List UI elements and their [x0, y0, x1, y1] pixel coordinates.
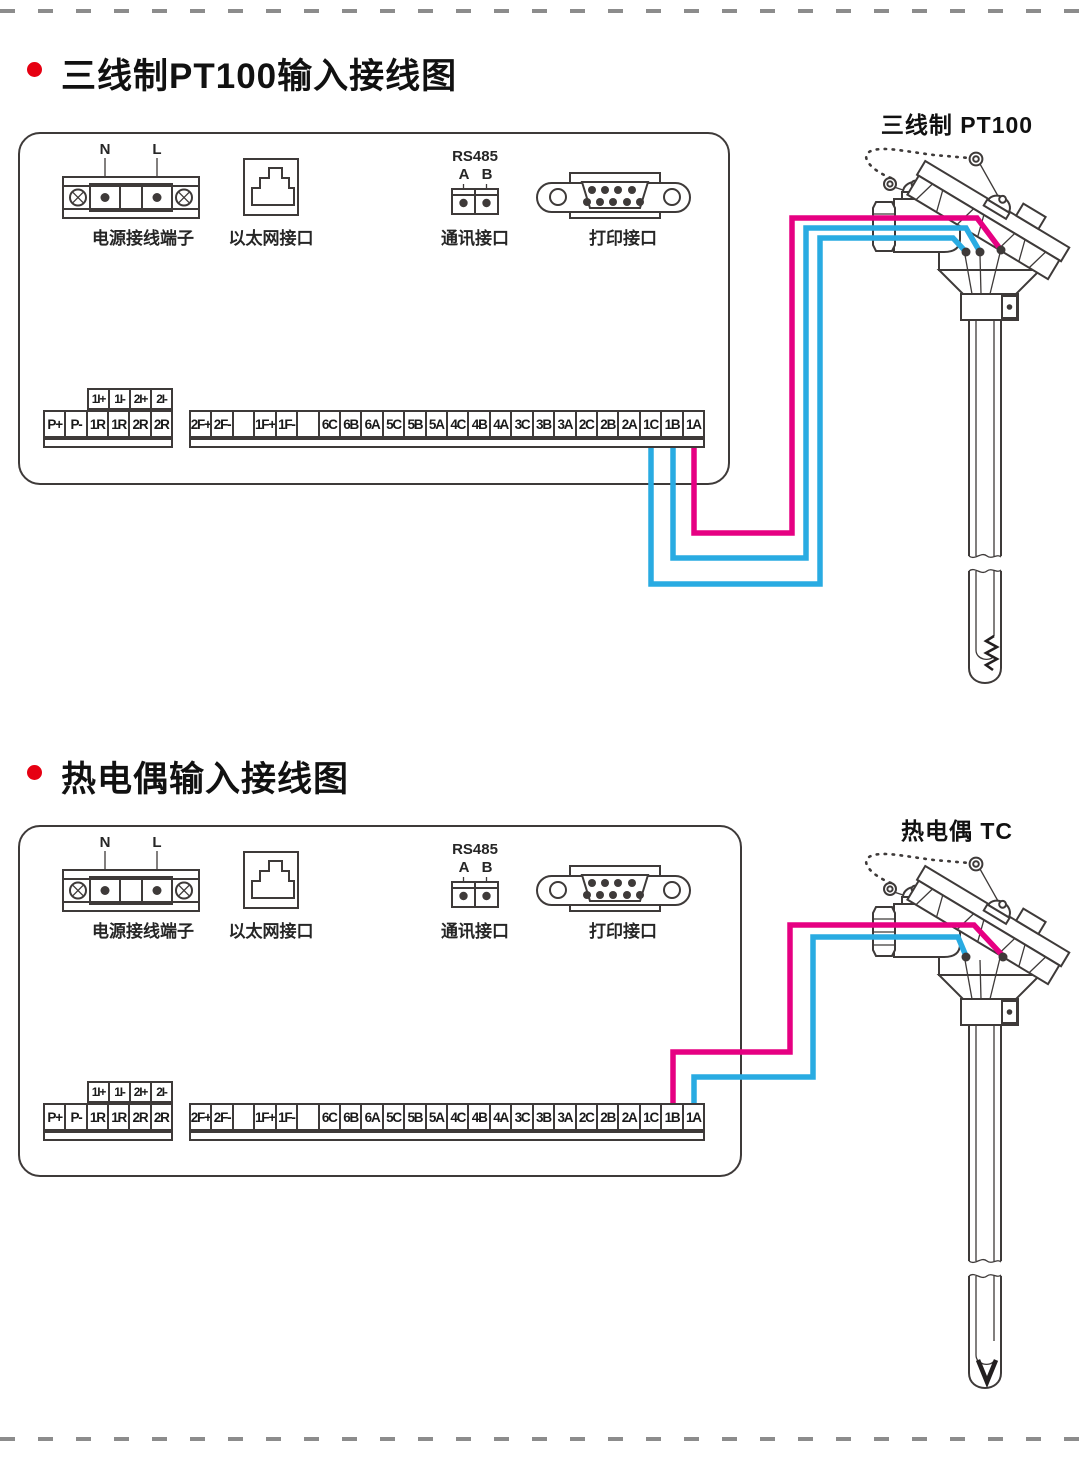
terminal-cell: 2C: [577, 412, 598, 436]
left-terminal-row-1: P+P-1R1R2R2R: [43, 410, 173, 438]
power-terminal-graphic-1: [63, 158, 199, 218]
comm-caption-2: 通讯接口: [425, 917, 525, 942]
power-pin-n-1: N: [97, 141, 113, 158]
terminal-cell: 2A: [619, 412, 640, 436]
terminal-cell: 2I-: [152, 1083, 171, 1101]
terminal-cell: 1I-: [110, 1083, 131, 1101]
right-terminal-rail-2: [189, 1131, 705, 1141]
rs485-terminal-graphic-2: [452, 877, 498, 907]
terminal-cell: 1R: [88, 412, 109, 436]
ethernet-port-graphic-2: [244, 852, 298, 908]
terminal-cell: 5B: [405, 412, 426, 436]
terminal-cell: 1I+: [89, 1083, 110, 1101]
comm-caption-1: 通讯接口: [425, 224, 525, 249]
terminal-cell: [298, 412, 319, 436]
terminal-cell: 6B: [341, 1105, 362, 1129]
left-terminal-rail-2: [43, 1131, 173, 1141]
rs485-pin-a-1: A: [456, 166, 472, 183]
tc-sensor-label: 热电偶 TC: [852, 812, 1062, 846]
left-terminal-rail-1: [43, 438, 173, 448]
terminal-cell: P-: [66, 412, 87, 436]
terminal-cell: 2C: [577, 1105, 598, 1129]
terminal-cell: 2F-: [212, 1105, 233, 1129]
terminal-cell: P-: [66, 1105, 87, 1129]
terminal-cell: 6C: [320, 1105, 341, 1129]
page: 三线制PT100输入接线图 热电偶输入接线图: [0, 0, 1080, 1468]
aux-terminal-header-1: 1I+1I-2I+2I-: [87, 388, 173, 410]
terminal-cell: 1F+: [255, 1105, 276, 1129]
terminal-cell: 3B: [534, 412, 555, 436]
right-terminal-row-2: 2F+2F-1F+1F-6C6B6A5C5B5A4C4B4A3C3B3A2C2B…: [189, 1103, 705, 1131]
left-terminal-row-2: P+P-1R1R2R2R: [43, 1103, 173, 1131]
ethernet-caption-2: 以太网接口: [221, 917, 321, 942]
terminal-cell: 2R: [152, 412, 171, 436]
rs485-terminal-graphic-1: [452, 184, 498, 214]
terminal-cell: 2R: [152, 1105, 171, 1129]
ethernet-port-graphic-1: [244, 159, 298, 215]
tc-junction-symbol: [978, 1360, 996, 1382]
terminal-cell: 1C: [641, 412, 662, 436]
terminal-cell: 1R: [109, 412, 130, 436]
terminal-cell: 3B: [534, 1105, 555, 1129]
terminal-cell: 1I+: [89, 390, 110, 408]
terminal-cell: 6A: [362, 412, 383, 436]
terminal-cell: 1F+: [255, 412, 276, 436]
wiring-diagram-artwork: [0, 0, 1080, 1468]
terminal-cell: 2I-: [152, 390, 171, 408]
terminal-cell: 2R: [130, 1105, 151, 1129]
terminal-cell: 1I-: [110, 390, 131, 408]
terminal-cell: 5C: [384, 412, 405, 436]
terminal-cell: [234, 412, 255, 436]
terminal-cell: 1B: [662, 412, 683, 436]
terminal-cell: 1R: [88, 1105, 109, 1129]
terminal-cell: 1A: [684, 412, 703, 436]
terminal-cell: 4C: [448, 412, 469, 436]
aux-terminal-header-2: 1I+1I-2I+2I-: [87, 1081, 173, 1103]
power-caption-1: 电源接线端子: [82, 224, 204, 249]
terminal-cell: 1C: [641, 1105, 662, 1129]
power-pin-n-2: N: [97, 834, 113, 851]
terminal-cell: 2B: [598, 412, 619, 436]
printer-caption-2: 打印接口: [573, 917, 673, 942]
terminal-cell: 1F-: [277, 1105, 298, 1129]
rs485-pin-b-2: B: [479, 859, 495, 876]
terminal-cell: [298, 1105, 319, 1129]
terminal-cell: 3C: [512, 1105, 533, 1129]
printer-port-graphic-2: [537, 866, 690, 911]
terminal-cell: 5A: [427, 1105, 448, 1129]
terminal-cell: 6C: [320, 412, 341, 436]
terminal-cell: 1B: [662, 1105, 683, 1129]
right-terminal-row-1: 2F+2F-1F+1F-6C6B6A5C5B5A4C4B4A3C3B3A2C2B…: [189, 410, 705, 438]
terminal-cell: 5A: [427, 412, 448, 436]
printer-port-graphic-1: [537, 173, 690, 218]
terminal-cell: 3A: [555, 412, 576, 436]
terminal-cell: 2A: [619, 1105, 640, 1129]
terminal-cell: 4B: [469, 412, 490, 436]
terminal-cell: 1A: [684, 1105, 703, 1129]
terminal-cell: 3C: [512, 412, 533, 436]
terminal-cell: 3A: [555, 1105, 576, 1129]
power-caption-2: 电源接线端子: [82, 917, 204, 942]
terminal-cell: 4B: [469, 1105, 490, 1129]
terminal-cell: 1R: [109, 1105, 130, 1129]
terminal-cell: [234, 1105, 255, 1129]
terminal-cell: 5C: [384, 1105, 405, 1129]
terminal-cell: 4C: [448, 1105, 469, 1129]
terminal-cell: 2I+: [131, 390, 152, 408]
terminal-cell: 4A: [491, 1105, 512, 1129]
printer-caption-1: 打印接口: [573, 224, 673, 249]
terminal-cell: 2F+: [191, 412, 212, 436]
ethernet-caption-1: 以太网接口: [221, 224, 321, 249]
terminal-cell: 2I+: [131, 1083, 152, 1101]
terminal-cell: 6A: [362, 1105, 383, 1129]
power-terminal-graphic-2: [63, 851, 199, 911]
pt100-resistor-symbol: [986, 636, 997, 670]
terminal-cell: 5B: [405, 1105, 426, 1129]
terminal-cell: 4A: [491, 412, 512, 436]
terminal-cell: 2F-: [212, 412, 233, 436]
terminal-cell: 2F+: [191, 1105, 212, 1129]
rs485-pin-b-1: B: [479, 166, 495, 183]
rs485-label-2: RS485: [451, 841, 499, 858]
rs485-pin-a-2: A: [456, 859, 472, 876]
terminal-cell: P+: [45, 1105, 66, 1129]
terminal-cell: 2R: [130, 412, 151, 436]
terminal-cell: 1F-: [277, 412, 298, 436]
terminal-cell: P+: [45, 412, 66, 436]
tc-sensor-graphic: [866, 854, 1076, 1388]
terminal-cell: 6B: [341, 412, 362, 436]
power-pin-l-2: L: [149, 834, 165, 851]
rs485-label-1: RS485: [451, 148, 499, 165]
terminal-cell: 2B: [598, 1105, 619, 1129]
right-terminal-rail-1: [189, 438, 705, 448]
pt100-sensor-label: 三线制 PT100: [852, 106, 1062, 140]
power-pin-l-1: L: [149, 141, 165, 158]
